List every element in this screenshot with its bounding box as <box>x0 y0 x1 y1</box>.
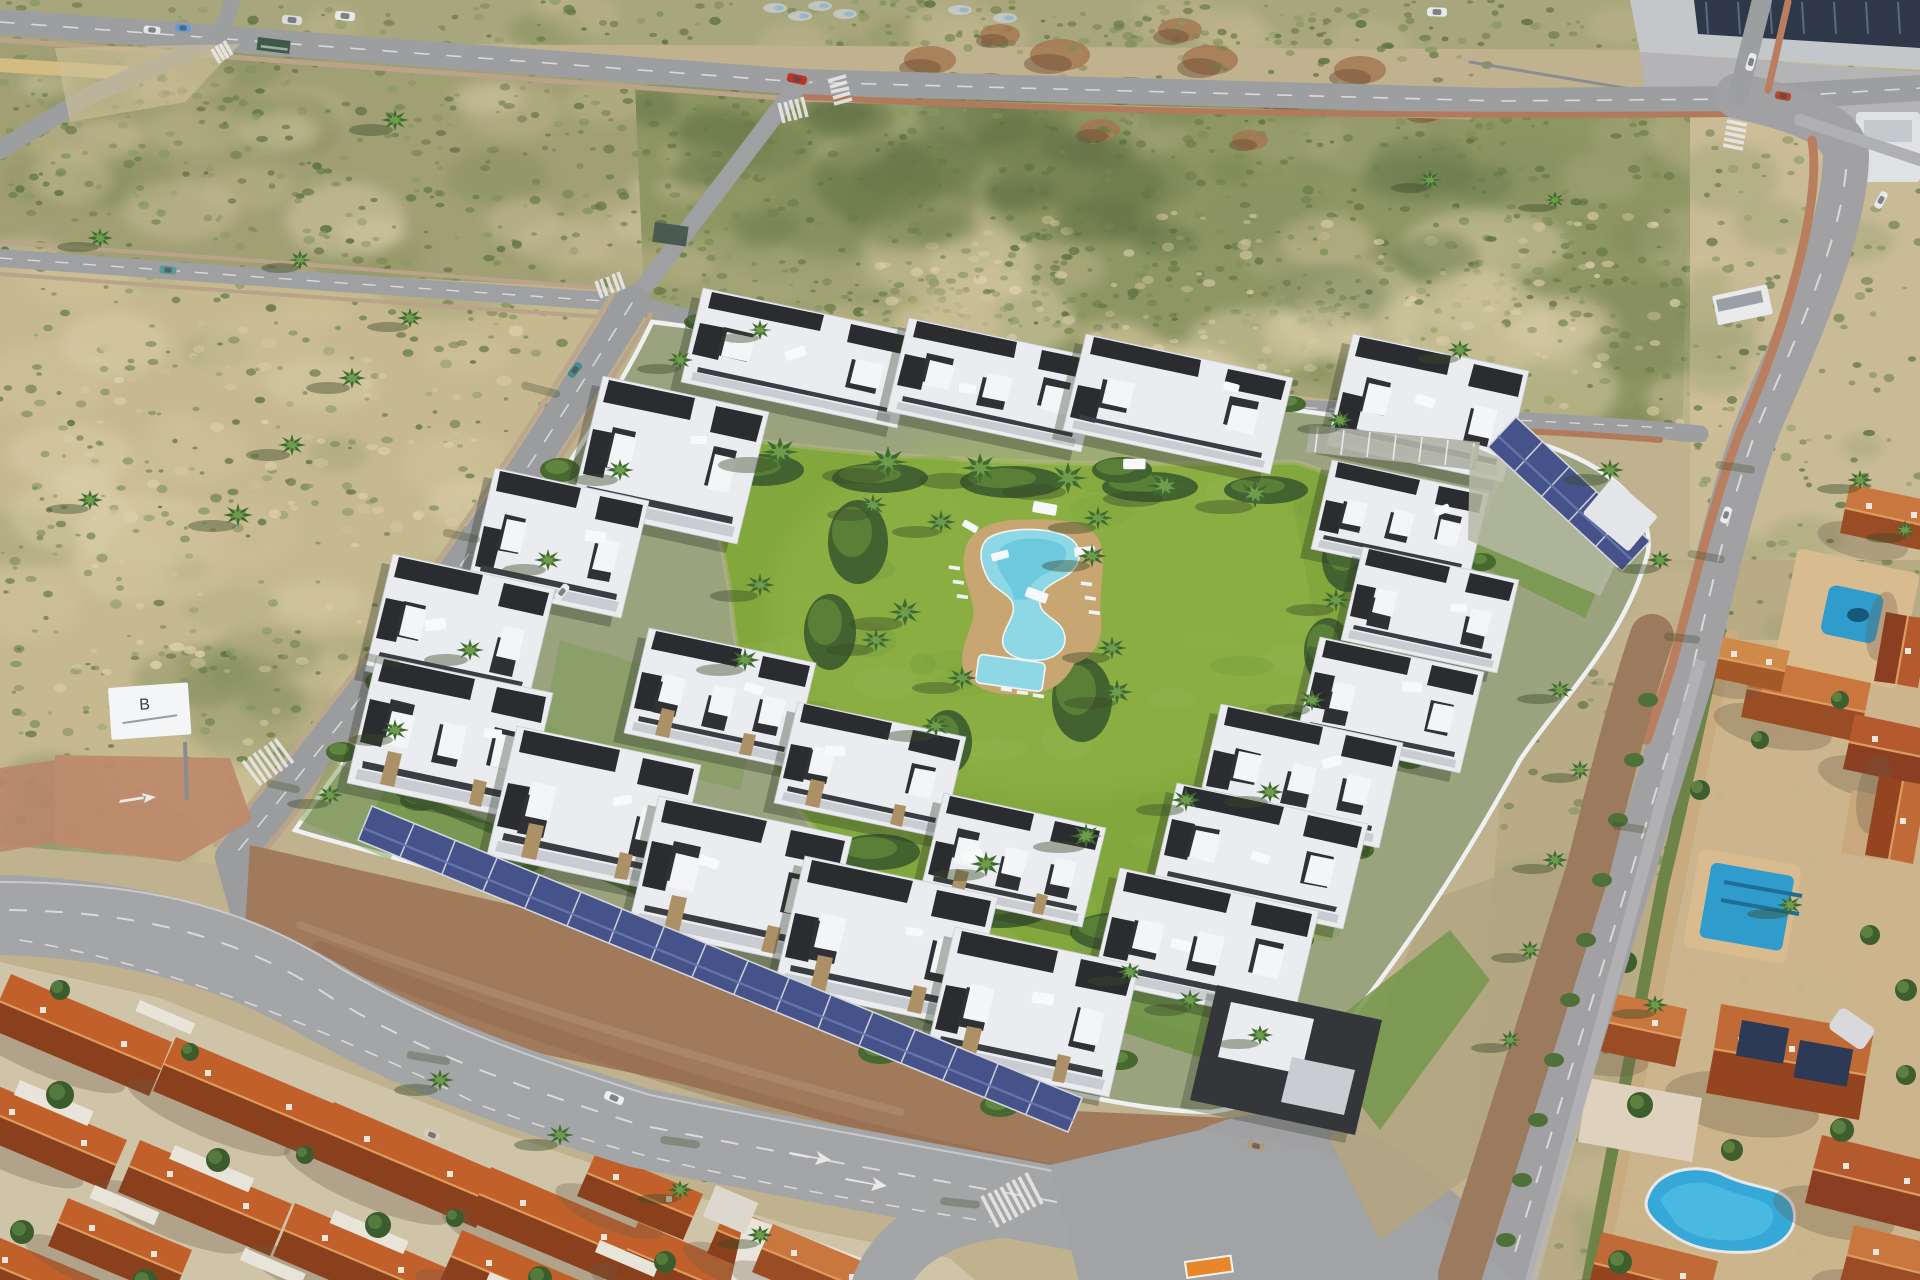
svg-text:B: B <box>139 696 151 714</box>
